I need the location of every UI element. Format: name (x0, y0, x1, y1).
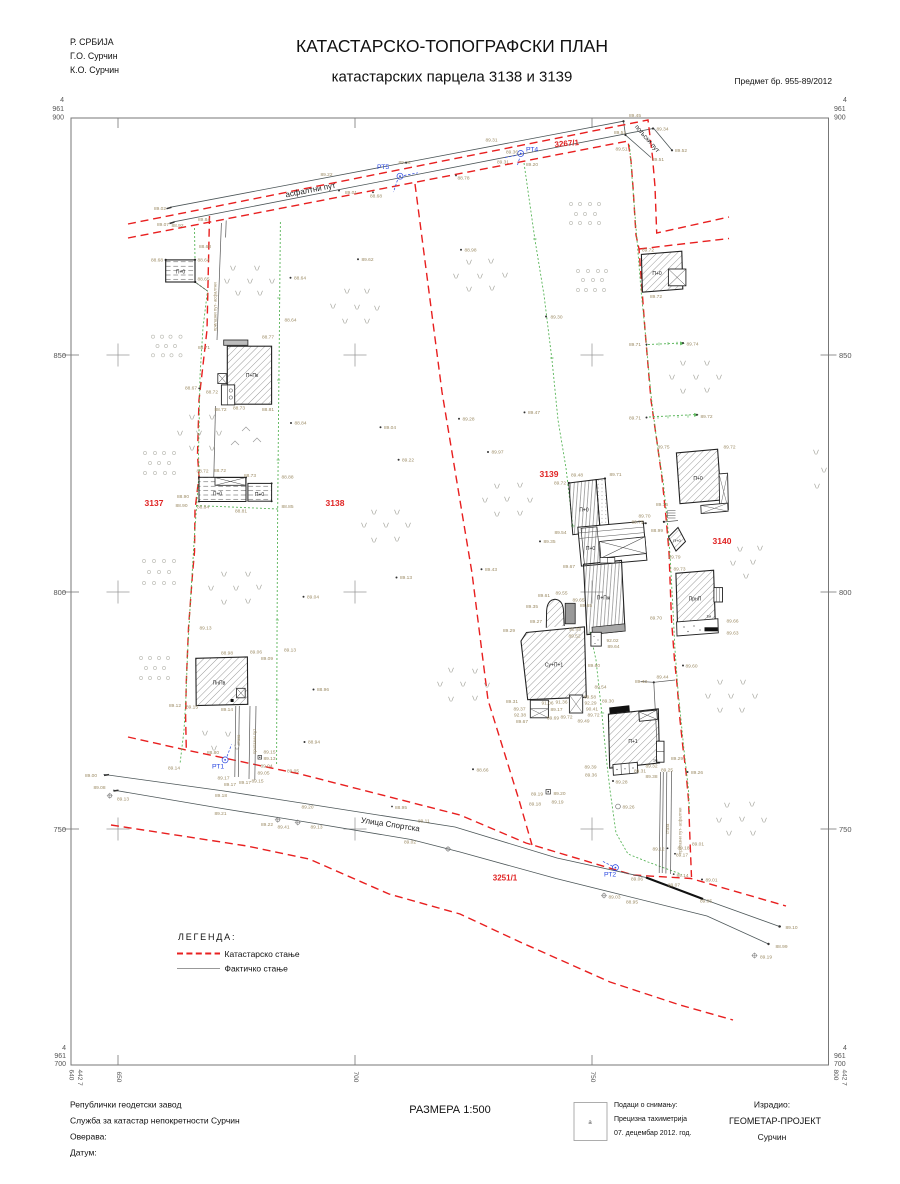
svg-text:89.61: 89.61 (538, 593, 550, 599)
svg-text:89.01: 89.01 (345, 190, 357, 196)
svg-text:П+0: П+0 (693, 476, 703, 482)
svg-text:89.01: 89.01 (692, 842, 704, 848)
svg-text:88.80: 88.80 (207, 750, 219, 756)
svg-text:1м: 1м (707, 615, 712, 619)
svg-text:89.60: 89.60 (686, 664, 698, 670)
svg-text:89.65: 89.65 (580, 603, 592, 609)
svg-text:89.19: 89.19 (760, 955, 772, 961)
svg-text:89.72: 89.72 (724, 445, 736, 451)
svg-text:89.00: 89.00 (85, 773, 97, 779)
svg-text:89.67: 89.67 (516, 719, 528, 725)
svg-text:650: 650 (115, 1072, 122, 1083)
svg-text:89.18: 89.18 (215, 793, 227, 799)
svg-text:3140: 3140 (713, 536, 732, 546)
svg-text:89.41: 89.41 (278, 825, 290, 831)
svg-text:961: 961 (52, 106, 64, 113)
svg-text:90.41: 90.41 (586, 707, 598, 713)
svg-text:89.06: 89.06 (631, 877, 643, 883)
svg-text:ПнПв: ПнПв (213, 681, 226, 687)
svg-text:89.62: 89.62 (362, 257, 374, 263)
svg-text:89.11: 89.11 (418, 819, 430, 825)
svg-text:89.44: 89.44 (657, 675, 669, 681)
svg-text:89.34: 89.34 (657, 127, 669, 133)
svg-text:850: 850 (53, 351, 66, 360)
svg-text:88.90: 88.90 (177, 494, 189, 500)
svg-text:3139: 3139 (540, 469, 559, 479)
svg-text:88.84: 88.84 (295, 421, 307, 427)
svg-text:прилазни пут- асфалтни: прилазни пут- асфалтни (213, 282, 218, 331)
svg-text:89.15: 89.15 (186, 705, 198, 711)
svg-text:89.20: 89.20 (302, 805, 314, 811)
svg-text:89.13: 89.13 (400, 575, 412, 581)
svg-text:800: 800 (839, 588, 852, 597)
svg-text:89.69: 89.69 (547, 716, 559, 722)
svg-text:88.72: 88.72 (215, 407, 227, 413)
svg-text:89.05: 89.05 (700, 899, 712, 905)
svg-text:стаза: стаза (236, 734, 241, 745)
svg-text:88.65: 88.65 (198, 277, 210, 283)
svg-text:88.64: 88.64 (294, 276, 306, 282)
svg-text:89.20: 89.20 (554, 791, 566, 797)
svg-text:89.31: 89.31 (506, 699, 518, 705)
svg-text:88.81: 88.81 (235, 509, 247, 515)
svg-text:89.31: 89.31 (486, 138, 498, 144)
svg-text:89.13: 89.13 (117, 797, 129, 803)
svg-text:89.30: 89.30 (551, 315, 563, 321)
svg-text:900: 900 (52, 115, 64, 122)
svg-text:89.63: 89.63 (727, 631, 739, 637)
svg-text:89.54: 89.54 (554, 530, 566, 536)
svg-text:Израдио:: Израдио: (754, 1100, 790, 1110)
svg-text:89.72: 89.72 (642, 248, 654, 254)
svg-text:89.28: 89.28 (463, 417, 475, 423)
svg-text:88.73: 88.73 (233, 406, 245, 412)
svg-text:3138: 3138 (326, 498, 345, 508)
svg-text:89.17: 89.17 (218, 776, 230, 782)
svg-text:88.99: 88.99 (776, 944, 788, 950)
svg-text:89.97: 89.97 (492, 450, 504, 456)
svg-text:961: 961 (54, 1053, 66, 1060)
svg-text:91.06: 91.06 (541, 701, 553, 707)
svg-text:89.31: 89.31 (634, 769, 646, 775)
svg-text:89.60: 89.60 (588, 663, 600, 669)
svg-text:Фактичко стање: Фактичко стање (225, 964, 289, 974)
svg-text:89.43: 89.43 (485, 567, 497, 573)
svg-text:Датум:: Датум: (70, 1148, 97, 1158)
svg-text:89.14: 89.14 (168, 766, 180, 772)
svg-text:89.54: 89.54 (594, 685, 606, 691)
svg-text:88.94: 88.94 (308, 740, 320, 746)
svg-text:Оверава:: Оверава: (70, 1132, 107, 1142)
svg-text:прилазни пут: прилазни пут (252, 729, 257, 754)
svg-text:89.04: 89.04 (384, 425, 396, 431)
svg-text:89.66: 89.66 (727, 619, 739, 625)
svg-text:89.58: 89.58 (584, 695, 596, 701)
svg-text:П+Пж: П+Пж (597, 596, 611, 602)
svg-text:ГЕОМЕТАР-ПРОЈЕКТ: ГЕОМЕТАР-ПРОЈЕКТ (729, 1116, 822, 1126)
svg-text:88.68: 88.68 (151, 258, 163, 264)
svg-text:89.14: 89.14 (677, 873, 689, 879)
svg-text:89.51: 89.51 (652, 157, 664, 163)
svg-text:89.02: 89.02 (404, 840, 416, 846)
svg-text:89.36: 89.36 (585, 773, 597, 779)
svg-text:3251/1: 3251/1 (493, 874, 518, 883)
svg-text:88.85: 88.85 (282, 504, 294, 510)
svg-text:88.99: 88.99 (651, 528, 663, 534)
svg-text:Сурчин: Сурчин (758, 1132, 787, 1142)
svg-text:89.71: 89.71 (629, 416, 641, 422)
svg-text:700: 700 (834, 1061, 846, 1068)
svg-text:88.77: 88.77 (262, 335, 274, 341)
svg-text:89.08: 89.08 (93, 785, 105, 791)
svg-text:П+0: П+0 (255, 492, 265, 498)
svg-text:89.43: 89.43 (635, 679, 647, 685)
svg-text:Подаци о снимању:: Подаци о снимању: (614, 1102, 678, 1109)
svg-text:РТ5: РТ5 (377, 164, 389, 171)
svg-text:92.38: 92.38 (514, 713, 526, 719)
svg-text:89.39: 89.39 (584, 765, 596, 771)
svg-text:89.71: 89.71 (610, 472, 622, 478)
svg-text:89.13: 89.13 (311, 825, 323, 831)
svg-text:91.05: 91.05 (569, 627, 581, 633)
svg-text:88.95: 88.95 (395, 805, 407, 811)
svg-text:стаза: стаза (665, 823, 670, 834)
svg-text:3137: 3137 (145, 498, 164, 508)
svg-text:89.70: 89.70 (638, 514, 650, 520)
svg-text:89.19: 89.19 (552, 800, 564, 806)
svg-text:88.73: 88.73 (244, 473, 256, 479)
svg-text:88.72: 88.72 (214, 468, 226, 474)
svg-text:442 7: 442 7 (76, 1070, 83, 1087)
svg-text:89.76: 89.76 (656, 502, 668, 508)
svg-text:88.96: 88.96 (317, 687, 329, 693)
svg-text:88.67: 88.67 (185, 386, 197, 392)
svg-text:П+0: П+0 (673, 538, 681, 543)
svg-text:89.52: 89.52 (568, 634, 580, 640)
svg-text:89.49: 89.49 (577, 719, 589, 725)
svg-text:88.95: 88.95 (626, 900, 638, 906)
svg-text:89.74: 89.74 (687, 342, 699, 348)
svg-text:ЛЕГЕНДА:: ЛЕГЕНДА: (178, 932, 236, 942)
svg-text:РТ2: РТ2 (604, 872, 616, 879)
svg-text:89.14: 89.14 (221, 707, 233, 713)
svg-text:89.67: 89.67 (563, 564, 575, 570)
svg-text:800: 800 (53, 588, 66, 597)
svg-text:750: 750 (53, 825, 66, 834)
svg-text:89.17: 89.17 (676, 853, 688, 859)
svg-text:07. децембар 2012. год.: 07. децембар 2012. год. (614, 1129, 691, 1137)
svg-text:89.13: 89.13 (200, 626, 212, 632)
svg-text:92.02: 92.02 (607, 638, 619, 644)
svg-text:Су+П+1: Су+П+1 (545, 663, 564, 669)
svg-text:89.75: 89.75 (657, 445, 669, 451)
svg-text:Г.О. Сурчин: Г.О. Сурчин (70, 51, 118, 61)
svg-text:89.07: 89.07 (668, 883, 680, 889)
svg-text:89.72: 89.72 (650, 294, 662, 300)
svg-text:89.01: 89.01 (706, 878, 718, 884)
svg-text:88.81: 88.81 (262, 407, 274, 413)
svg-text:89.84: 89.84 (198, 217, 210, 223)
svg-text:89.15: 89.15 (252, 779, 264, 785)
svg-text:89.27: 89.27 (530, 619, 542, 625)
svg-text:89.26: 89.26 (623, 805, 635, 811)
svg-text:89.05: 89.05 (287, 769, 299, 775)
svg-text:П+0: П+0 (586, 546, 596, 552)
svg-text:89.10: 89.10 (786, 925, 798, 931)
svg-text:640: 640 (68, 1070, 75, 1081)
svg-text:89.64: 89.64 (608, 644, 620, 650)
svg-text:89.52: 89.52 (675, 148, 687, 154)
svg-text:89.29: 89.29 (671, 756, 683, 762)
svg-text:К.О. Сурчин: К.О. Сурчин (70, 65, 119, 75)
svg-text:ПрнП: ПрнП (689, 597, 702, 603)
svg-text:89.07: 89.07 (157, 222, 169, 228)
svg-text:89.17: 89.17 (550, 707, 562, 713)
svg-text:88.78: 88.78 (458, 176, 470, 182)
svg-text:88.64: 88.64 (285, 318, 297, 324)
svg-text:88.92: 88.92 (172, 223, 184, 229)
svg-text:4: 4 (843, 97, 847, 104)
svg-text:89.20: 89.20 (526, 162, 538, 168)
svg-text:88.98: 88.98 (465, 248, 477, 254)
svg-text:4: 4 (62, 1045, 66, 1052)
svg-text:89.55: 89.55 (555, 591, 567, 597)
svg-text:89.38: 89.38 (645, 774, 657, 780)
svg-text:961: 961 (834, 1053, 846, 1060)
svg-text:П+0: П+0 (579, 508, 589, 514)
svg-text:89.22: 89.22 (402, 458, 414, 464)
svg-text:Прецизна тахиметрија: Прецизна тахиметрија (614, 1116, 687, 1123)
svg-text:88.98: 88.98 (221, 651, 233, 657)
svg-text:88.84: 88.84 (197, 505, 209, 511)
svg-text:88.90: 88.90 (175, 503, 187, 509)
svg-text:92.29: 92.29 (585, 701, 597, 707)
svg-text:900: 900 (834, 115, 846, 122)
svg-text:катастарских парцела 3138 и 31: катастарских парцела 3138 и 3139 (332, 69, 573, 86)
svg-text:750: 750 (839, 825, 852, 834)
svg-text:89.09: 89.09 (261, 656, 273, 662)
svg-text:89.03: 89.03 (609, 895, 621, 901)
svg-text:89.51: 89.51 (615, 147, 627, 153)
svg-text:89.48: 89.48 (571, 473, 583, 479)
svg-text:91.36: 91.36 (555, 700, 567, 706)
svg-text:89.72: 89.72 (554, 481, 566, 487)
svg-text:89.26: 89.26 (691, 770, 703, 776)
svg-text:89.75: 89.75 (631, 520, 643, 526)
svg-text:89.13: 89.13 (284, 648, 296, 654)
svg-text:89.35: 89.35 (526, 604, 538, 610)
svg-text:89.12: 89.12 (169, 703, 181, 709)
svg-text:89.72: 89.72 (701, 414, 713, 420)
svg-text:П+0: П+0 (652, 271, 662, 277)
svg-text:89.22: 89.22 (261, 822, 273, 828)
svg-text:89.35: 89.35 (544, 539, 556, 545)
svg-text:89.13: 89.13 (264, 756, 276, 762)
svg-text:89.25: 89.25 (661, 768, 673, 774)
svg-text:750: 750 (589, 1072, 596, 1083)
svg-text:89.73: 89.73 (673, 567, 685, 573)
svg-text:РАЗМЕРА 1:500: РАЗМЕРА 1:500 (409, 1104, 490, 1116)
svg-text:700: 700 (352, 1072, 359, 1083)
svg-text:89.37: 89.37 (513, 707, 525, 713)
svg-text:88.88: 88.88 (282, 475, 294, 481)
svg-text:89.06: 89.06 (399, 160, 411, 166)
svg-text:КАТАСТАРСКО-ТОПОГРАФСКИ ПЛАН: КАТАСТАРСКО-ТОПОГРАФСКИ ПЛАН (296, 36, 608, 56)
svg-text:Републички геодетски завод: Републички геодетски завод (70, 1100, 181, 1110)
svg-text:89.32: 89.32 (645, 764, 657, 770)
svg-text:89.79: 89.79 (668, 555, 680, 561)
svg-text:442 7: 442 7 (841, 1070, 848, 1087)
svg-text:89.71: 89.71 (629, 342, 641, 348)
svg-text:89.21: 89.21 (215, 811, 227, 817)
svg-text:89.05: 89.05 (258, 771, 270, 777)
svg-text:89.45: 89.45 (629, 113, 641, 119)
svg-text:П+1: П+1 (628, 739, 638, 745)
svg-text:88.72: 88.72 (206, 390, 218, 396)
svg-text:Служба за катастар непокретнос: Служба за катастар непокретности Сурчин (70, 1116, 240, 1126)
svg-text:РТ1: РТ1 (212, 764, 224, 771)
svg-text:89.30: 89.30 (602, 699, 614, 705)
svg-text:89.17: 89.17 (239, 780, 251, 786)
svg-text:89.29: 89.29 (503, 628, 515, 634)
svg-text:88.66: 88.66 (477, 768, 489, 774)
svg-text:4: 4 (60, 97, 64, 104)
svg-text:89.72: 89.72 (588, 713, 600, 719)
svg-text:700: 700 (54, 1061, 66, 1068)
svg-text:89.36: 89.36 (506, 150, 518, 156)
svg-text:Катастарско стање: Катастарско стање (225, 949, 300, 959)
svg-text:850: 850 (839, 351, 852, 360)
svg-text:89.31: 89.31 (497, 160, 509, 166)
svg-text:4: 4 (843, 1045, 847, 1052)
svg-text:89.18: 89.18 (678, 846, 690, 852)
svg-text:П+0: П+0 (213, 492, 223, 498)
svg-text:89.72: 89.72 (560, 715, 572, 721)
svg-text:РТ4: РТ4 (526, 147, 538, 154)
svg-text:89.06: 89.06 (250, 650, 262, 656)
svg-text:89.17: 89.17 (224, 782, 236, 788)
svg-text:89.65: 89.65 (573, 598, 585, 604)
svg-text:961: 961 (834, 106, 846, 113)
svg-text:1м: 1м (653, 759, 658, 763)
svg-text:88.71: 88.71 (198, 345, 210, 351)
svg-text:88.68: 88.68 (199, 244, 211, 250)
svg-text:89.19: 89.19 (531, 792, 543, 798)
svg-text:89.12: 89.12 (652, 847, 664, 853)
svg-text:89.70: 89.70 (650, 616, 662, 622)
svg-text:89.47: 89.47 (528, 410, 540, 416)
svg-text:88.72: 88.72 (197, 469, 209, 475)
svg-text:89.15: 89.15 (264, 750, 276, 756)
svg-text:Предмет бр. 955-89/2012: Предмет бр. 955-89/2012 (735, 76, 833, 86)
svg-text:П+Пк: П+Пк (246, 373, 259, 379)
svg-text:89.04: 89.04 (261, 764, 273, 770)
svg-text:88.64: 88.64 (198, 258, 210, 264)
svg-text:88.68: 88.68 (370, 194, 382, 200)
svg-text:89.04: 89.04 (307, 595, 319, 601)
svg-text:89.18: 89.18 (529, 802, 541, 808)
svg-text:89.28: 89.28 (616, 780, 628, 786)
svg-text:П+0: П+0 (176, 270, 186, 276)
svg-text:89.22: 89.22 (321, 172, 333, 178)
svg-text:89.02: 89.02 (154, 206, 166, 212)
svg-text:800: 800 (832, 1070, 839, 1081)
svg-text:Р. СРБИЈА: Р. СРБИЈА (70, 37, 114, 47)
